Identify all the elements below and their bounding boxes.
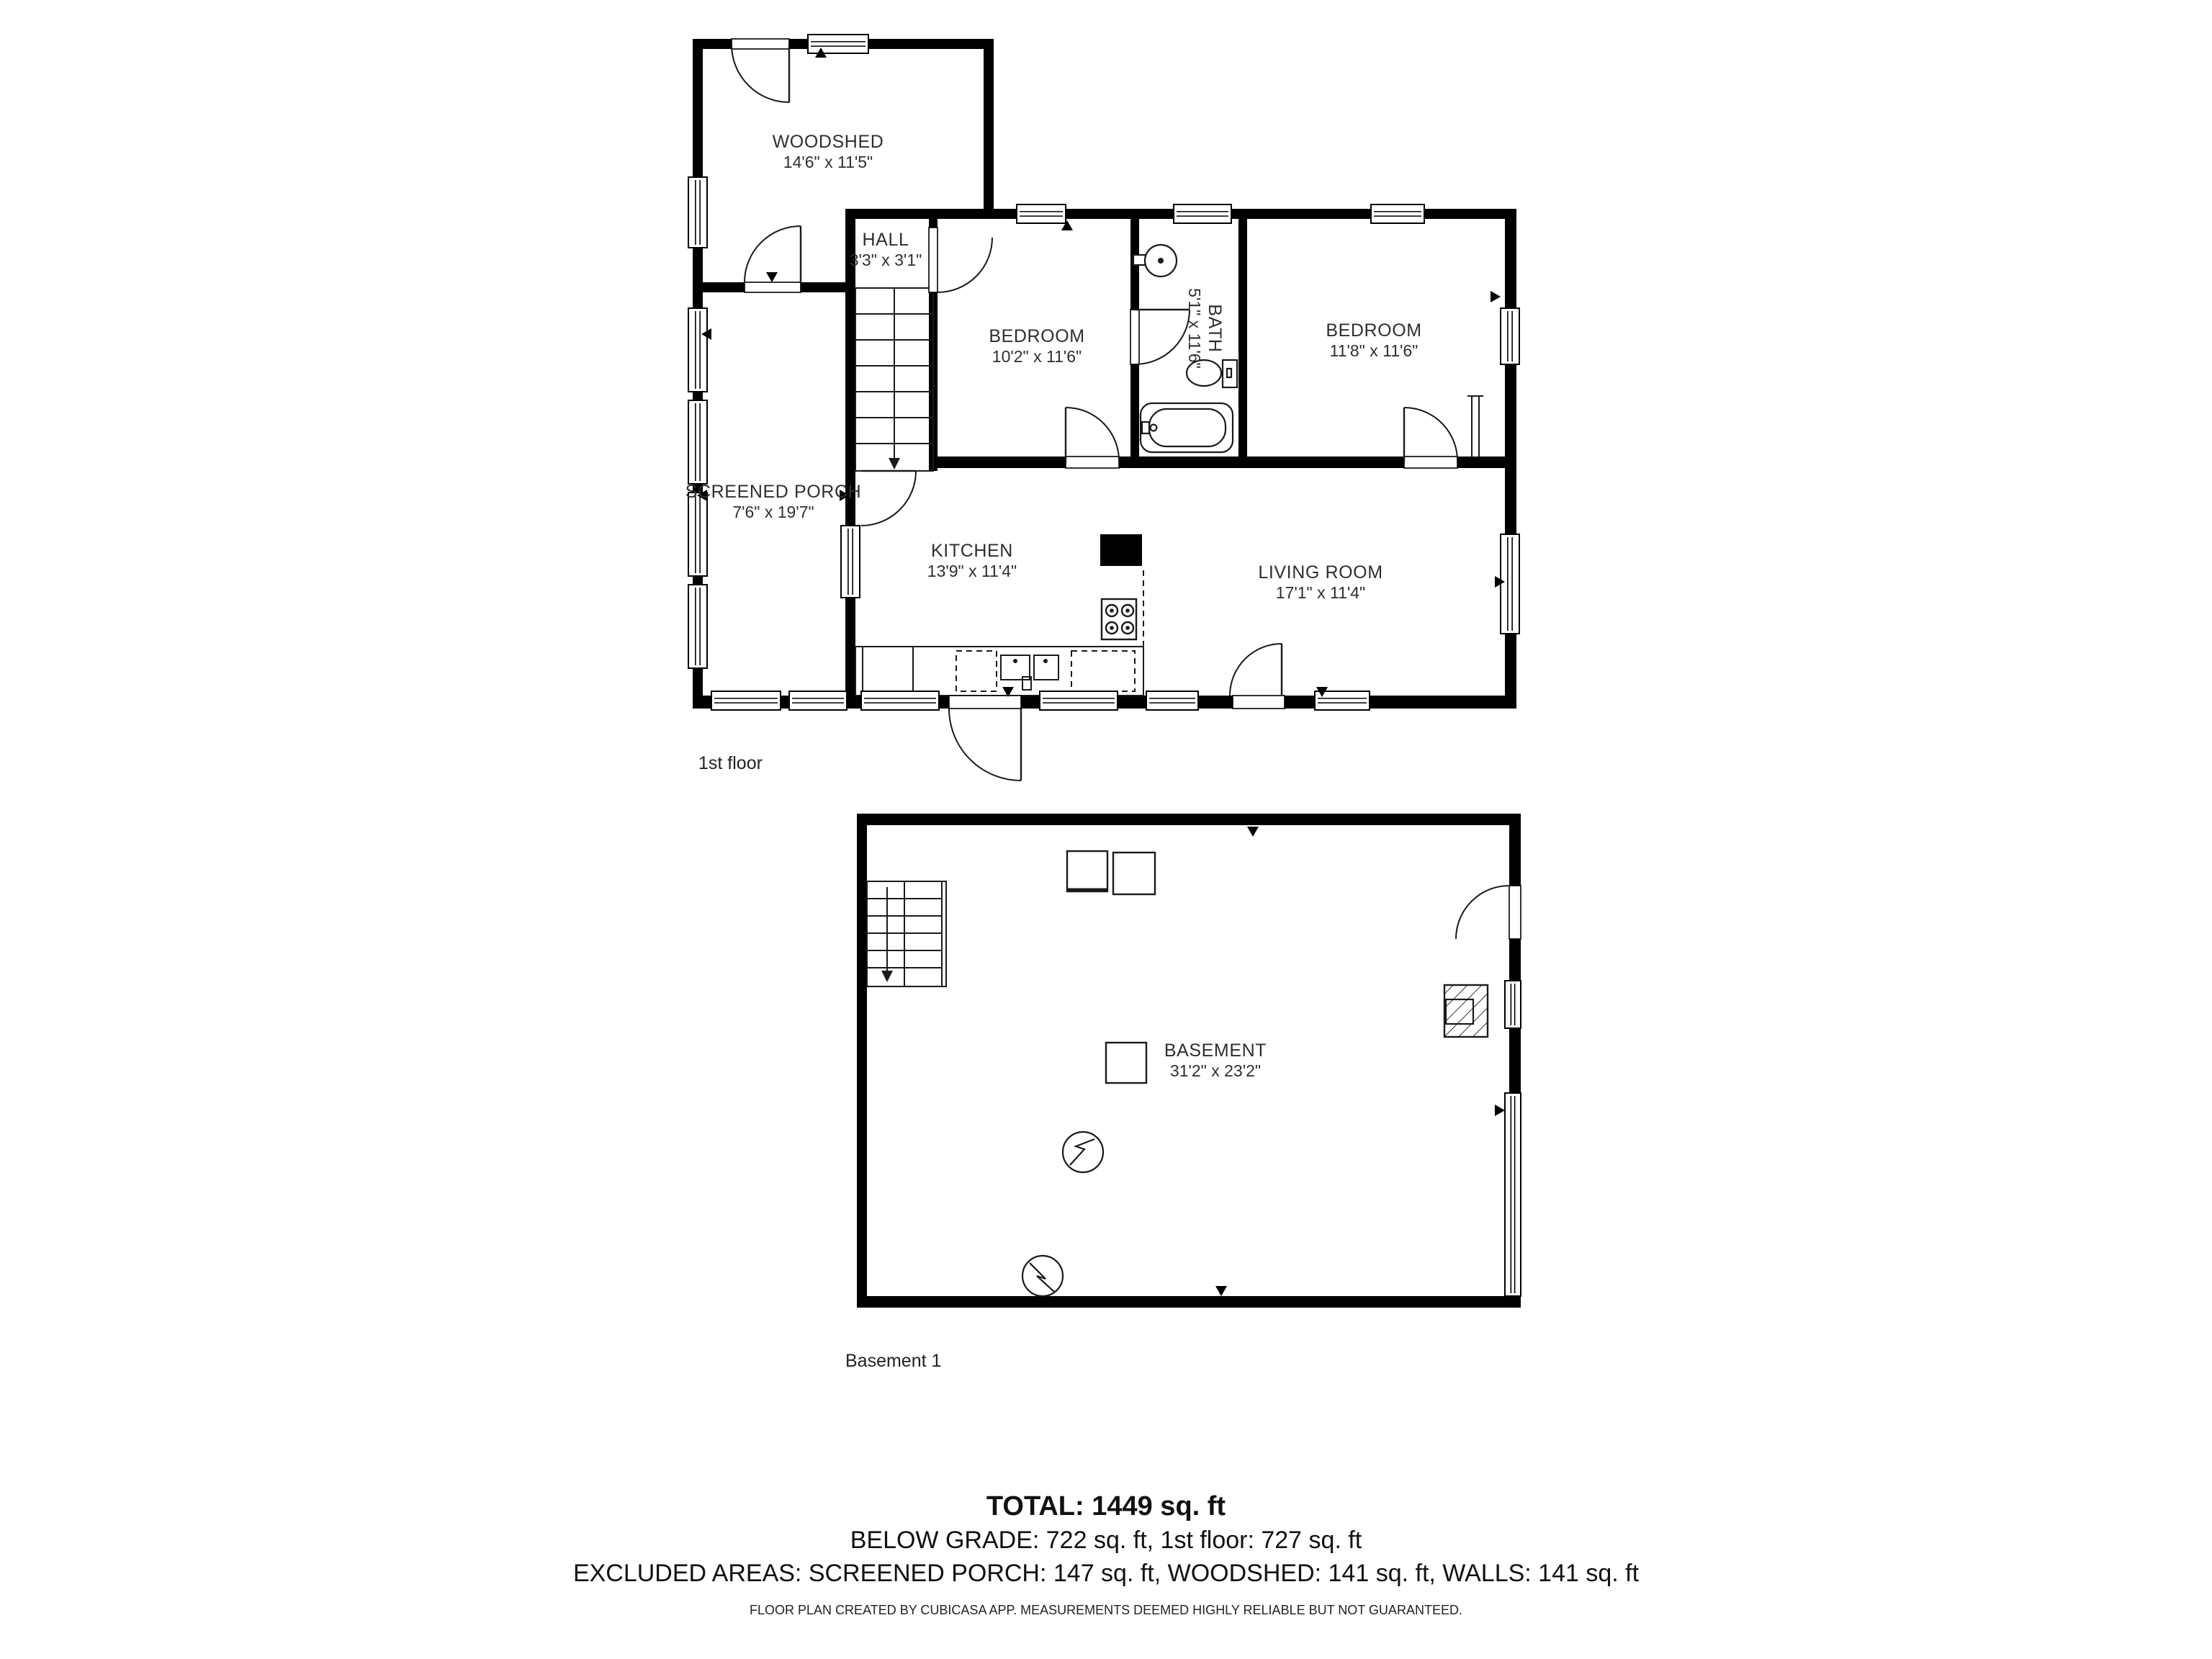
room-label-kitchen: KITCHEN 13'9" x 11'4": [927, 539, 1017, 584]
electrical-symbol-icon: [1022, 1256, 1063, 1296]
window-icon: [1146, 691, 1198, 710]
dimension-marker-icon: [766, 272, 778, 282]
door-icon: [949, 696, 1021, 781]
summary-excluded-areas: EXCLUDED AREAS: SCREENED PORCH: 147 sq. …: [0, 1560, 2212, 1588]
room-label-bath: BATH 5'1" x 11'6": [1182, 288, 1226, 369]
window-icon: [1505, 1093, 1521, 1296]
window-icon: [711, 691, 781, 710]
window-icon: [861, 691, 939, 710]
room-label-bedroom-2: BEDROOM 11'8" x 11'6": [1326, 319, 1421, 364]
room-label-bedroom-1: BEDROOM 10'2" x 11'6": [989, 325, 1084, 369]
closet-sliding-door: [1467, 396, 1483, 457]
window-icon: [688, 308, 707, 392]
floor-plan-page: WOODSHED 14'6" x 11'5" HALL 3'3" x 3'1" …: [0, 0, 2212, 1659]
dimension-marker-icon: [1491, 291, 1501, 302]
refrigerator-icon: [1100, 534, 1142, 566]
door-icon: [1130, 310, 1190, 364]
dimension-marker-icon: [1215, 1286, 1227, 1296]
window-icon: [1505, 981, 1521, 1028]
summary-total: TOTAL: 1449 sq. ft: [0, 1492, 2212, 1524]
room-label-hall: HALL 3'3" x 3'1": [850, 228, 922, 273]
window-icon: [841, 526, 860, 598]
window-icon: [1371, 204, 1424, 223]
electrical-symbol-icon: [1063, 1132, 1103, 1172]
floor-plan-drawing: [0, 0, 2212, 1659]
window-icon: [688, 585, 707, 668]
chimney-icon: [1444, 985, 1488, 1037]
dimension-marker-icon: [1495, 1105, 1505, 1116]
door-icon: [929, 228, 992, 292]
window-icon: [688, 400, 707, 484]
kitchen-sink-icon: [1001, 655, 1058, 690]
door-icon: [861, 471, 916, 526]
window-icon: [1501, 534, 1519, 634]
window-icon: [789, 691, 847, 710]
staircase-basement: [867, 881, 946, 986]
floor-caption-first-floor: 1st floor: [698, 753, 763, 773]
window-icon: [1501, 308, 1519, 364]
room-label-woodshed: WOODSHED 14'6" x 11'5": [773, 130, 884, 175]
window-icon: [1040, 691, 1118, 710]
door-icon: [1404, 408, 1457, 468]
appliance-boxes: [1067, 851, 1155, 1083]
door-icon: [1066, 408, 1119, 468]
room-label-basement: BASEMENT 31'2" x 23'2": [1164, 1039, 1267, 1084]
floor-caption-basement: Basement 1: [845, 1351, 941, 1371]
door-icon: [1230, 644, 1285, 709]
bathtub-icon: [1141, 403, 1233, 452]
door-icon: [732, 39, 789, 102]
window-icon: [688, 177, 707, 248]
bathroom-sink-icon: [1133, 245, 1177, 276]
staircase-first-floor: [855, 288, 933, 471]
summary-below-grade: BELOW GRADE: 722 sq. ft, 1st floor: 727 …: [0, 1527, 2212, 1555]
door-icon: [745, 226, 801, 292]
disclaimer-text: FLOOR PLAN CREATED BY CUBICASA APP. MEAS…: [0, 1603, 2212, 1617]
door-icon: [1456, 886, 1521, 939]
kitchen-counter: [855, 570, 1143, 696]
dimension-marker-icon: [1247, 827, 1259, 837]
window-icon: [1174, 204, 1231, 223]
support-post-icon: [1106, 1043, 1146, 1083]
window-icon: [808, 35, 868, 53]
room-label-screened-porch: SCREENED PORCH 7'6" x 19'7": [685, 480, 862, 525]
room-label-living-room: LIVING ROOM 17'1" x 11'4": [1258, 561, 1382, 606]
stove-icon: [1102, 599, 1136, 639]
window-icon: [1017, 204, 1066, 223]
